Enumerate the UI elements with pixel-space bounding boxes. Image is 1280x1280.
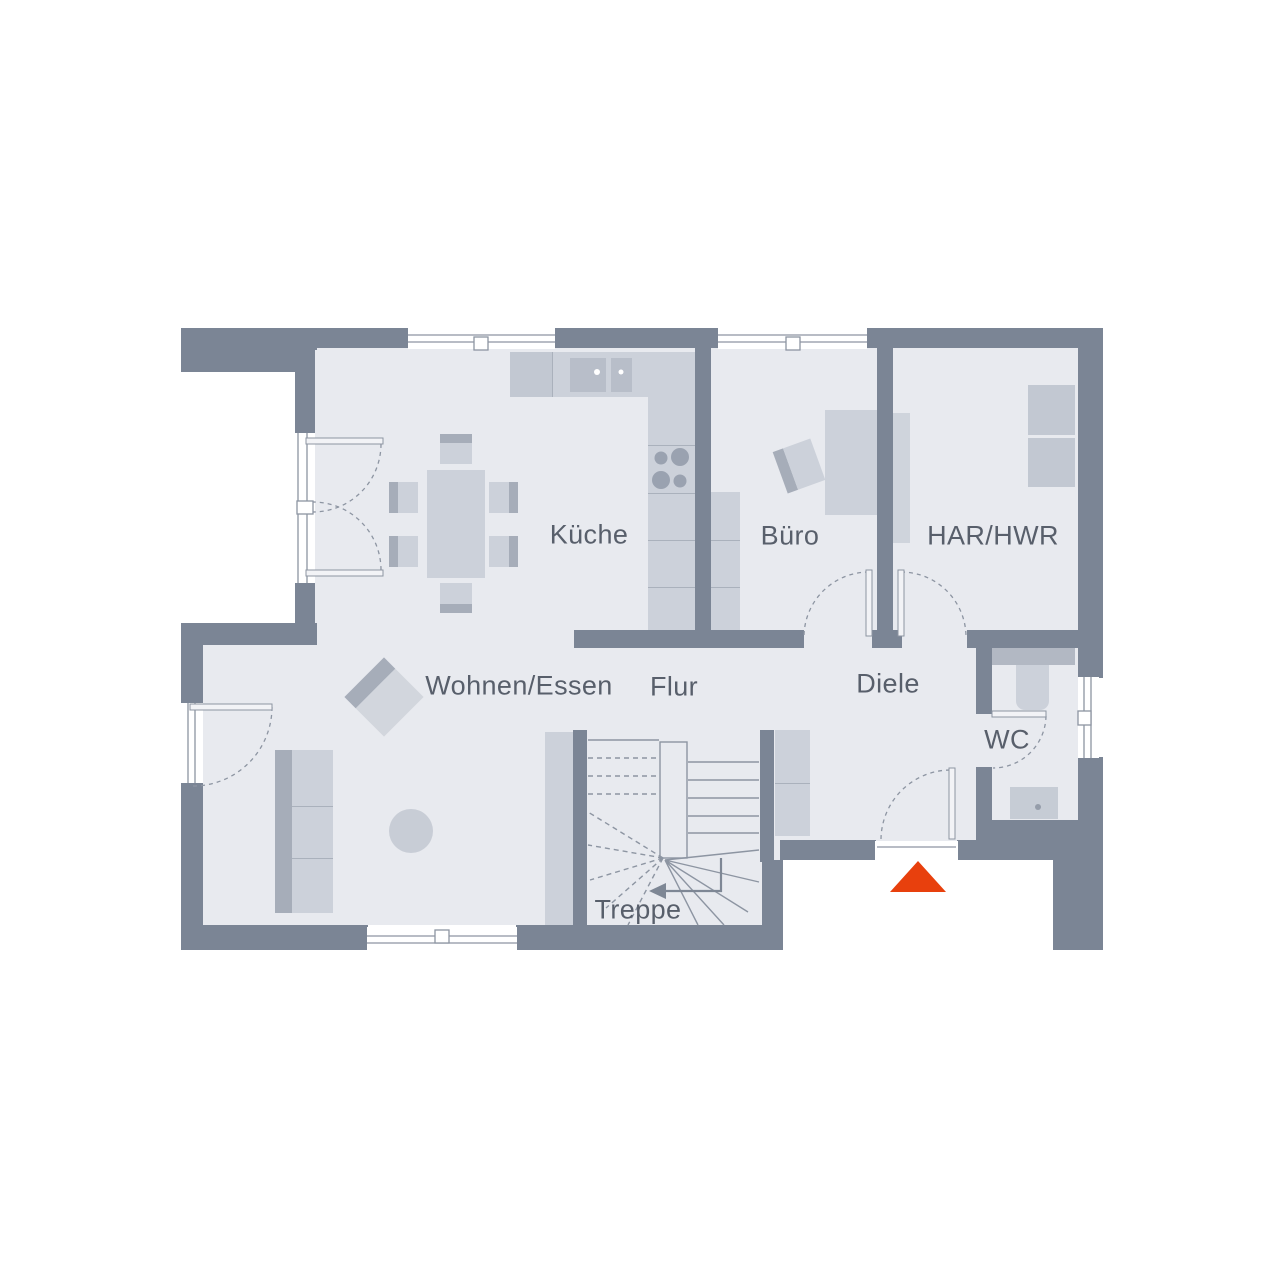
wall — [181, 783, 203, 927]
dining-chair — [389, 536, 418, 567]
kitchen-counter-side — [648, 397, 695, 632]
wall — [872, 630, 902, 648]
wall — [295, 350, 315, 437]
wall — [990, 820, 1078, 841]
dining-chair — [440, 434, 472, 464]
sofa — [292, 750, 333, 913]
window-office — [718, 327, 867, 349]
window-living — [367, 927, 517, 950]
wall — [967, 630, 1078, 648]
window-wc — [1078, 677, 1099, 758]
sideboard — [545, 732, 573, 927]
wall — [181, 623, 317, 645]
wall — [866, 328, 1103, 348]
wall — [762, 860, 783, 926]
dining-chair — [489, 482, 518, 513]
french-door — [288, 433, 315, 583]
kitchen-sink-small — [611, 358, 632, 392]
utility-shelf — [893, 413, 910, 543]
room-label-kueche: Küche — [550, 520, 629, 551]
office-shelf — [711, 492, 740, 632]
entrance-door — [875, 841, 958, 860]
dining-chair — [440, 583, 472, 613]
room-label-flur: Flur — [650, 672, 698, 703]
dryer — [1028, 438, 1075, 487]
wall — [976, 648, 992, 714]
wc-sink — [1010, 787, 1058, 819]
wall — [1078, 348, 1103, 678]
wall — [1078, 757, 1103, 841]
wall-stair-left — [573, 730, 587, 926]
wall-stair-right — [760, 730, 774, 862]
dining-table — [427, 470, 485, 578]
wall — [181, 925, 368, 950]
floor-plan: Küche Büro HAR/HWR Wohnen/Essen Flur Die… — [0, 0, 1280, 1280]
dining-chair — [389, 482, 418, 513]
wall — [574, 630, 804, 648]
wall-office-utility — [877, 348, 893, 638]
wall — [181, 328, 317, 350]
room-label-har-hwr: HAR/HWR — [927, 521, 1059, 552]
kitchen-counter-top — [510, 352, 695, 397]
wall — [516, 925, 783, 950]
wall — [181, 645, 203, 703]
kitchen-sink — [570, 358, 606, 392]
hall-wardrobe — [775, 730, 810, 836]
washing-machine — [1028, 385, 1075, 435]
wall — [317, 328, 409, 348]
wall — [181, 350, 297, 372]
wall — [780, 840, 876, 860]
room-label-wc: WC — [984, 725, 1030, 756]
window-kitchen — [408, 327, 555, 349]
wall-kitchen-office — [695, 348, 711, 645]
sofa-back — [275, 750, 292, 913]
toilet-cistern — [990, 645, 1075, 665]
room-label-wohnen-essen: Wohnen/Essen — [425, 671, 612, 702]
room-label-diele: Diele — [856, 669, 920, 700]
dining-chair — [489, 536, 518, 567]
office-desk — [825, 410, 877, 515]
wall — [957, 840, 1054, 860]
room-label-treppe: Treppe — [595, 895, 682, 926]
entrance-porch — [783, 860, 1053, 950]
terrace-door — [182, 703, 203, 783]
room-label-buero: Büro — [761, 521, 820, 552]
wall — [554, 328, 719, 348]
coffee-table — [389, 809, 433, 853]
wall — [1053, 840, 1103, 950]
toilet — [1016, 665, 1049, 710]
